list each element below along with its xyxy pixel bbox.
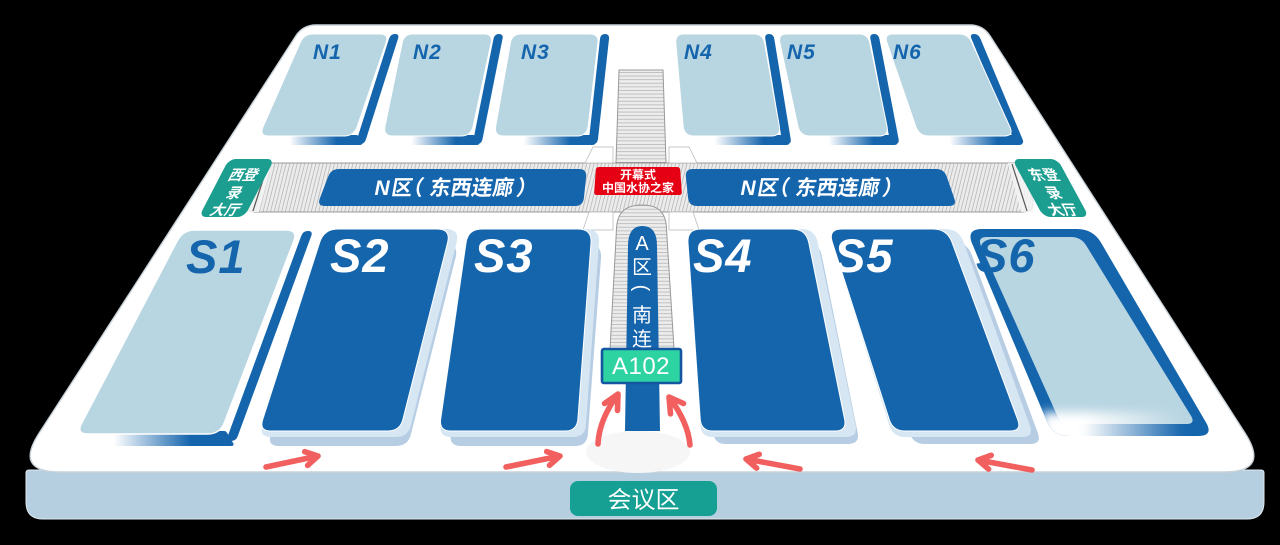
svg-text:N: N: [375, 177, 391, 200]
svg-text:S4: S4: [693, 229, 753, 282]
svg-text:N: N: [741, 177, 757, 200]
svg-text:S2: S2: [330, 229, 390, 282]
svg-text:N6: N6: [893, 41, 922, 64]
svg-text:S1: S1: [186, 230, 246, 283]
svg-text:(: (: [630, 285, 652, 292]
svg-text:S6: S6: [976, 229, 1036, 282]
svg-text:A: A: [635, 233, 649, 255]
svg-text:N1: N1: [313, 41, 342, 64]
svg-text:N4: N4: [684, 41, 713, 64]
svg-text:S3: S3: [474, 229, 534, 282]
svg-text:N3: N3: [521, 41, 550, 64]
svg-text:S5: S5: [834, 229, 894, 282]
svg-text:N2: N2: [413, 41, 442, 64]
svg-text:A102: A102: [612, 353, 670, 380]
svg-text:N5: N5: [787, 41, 816, 64]
